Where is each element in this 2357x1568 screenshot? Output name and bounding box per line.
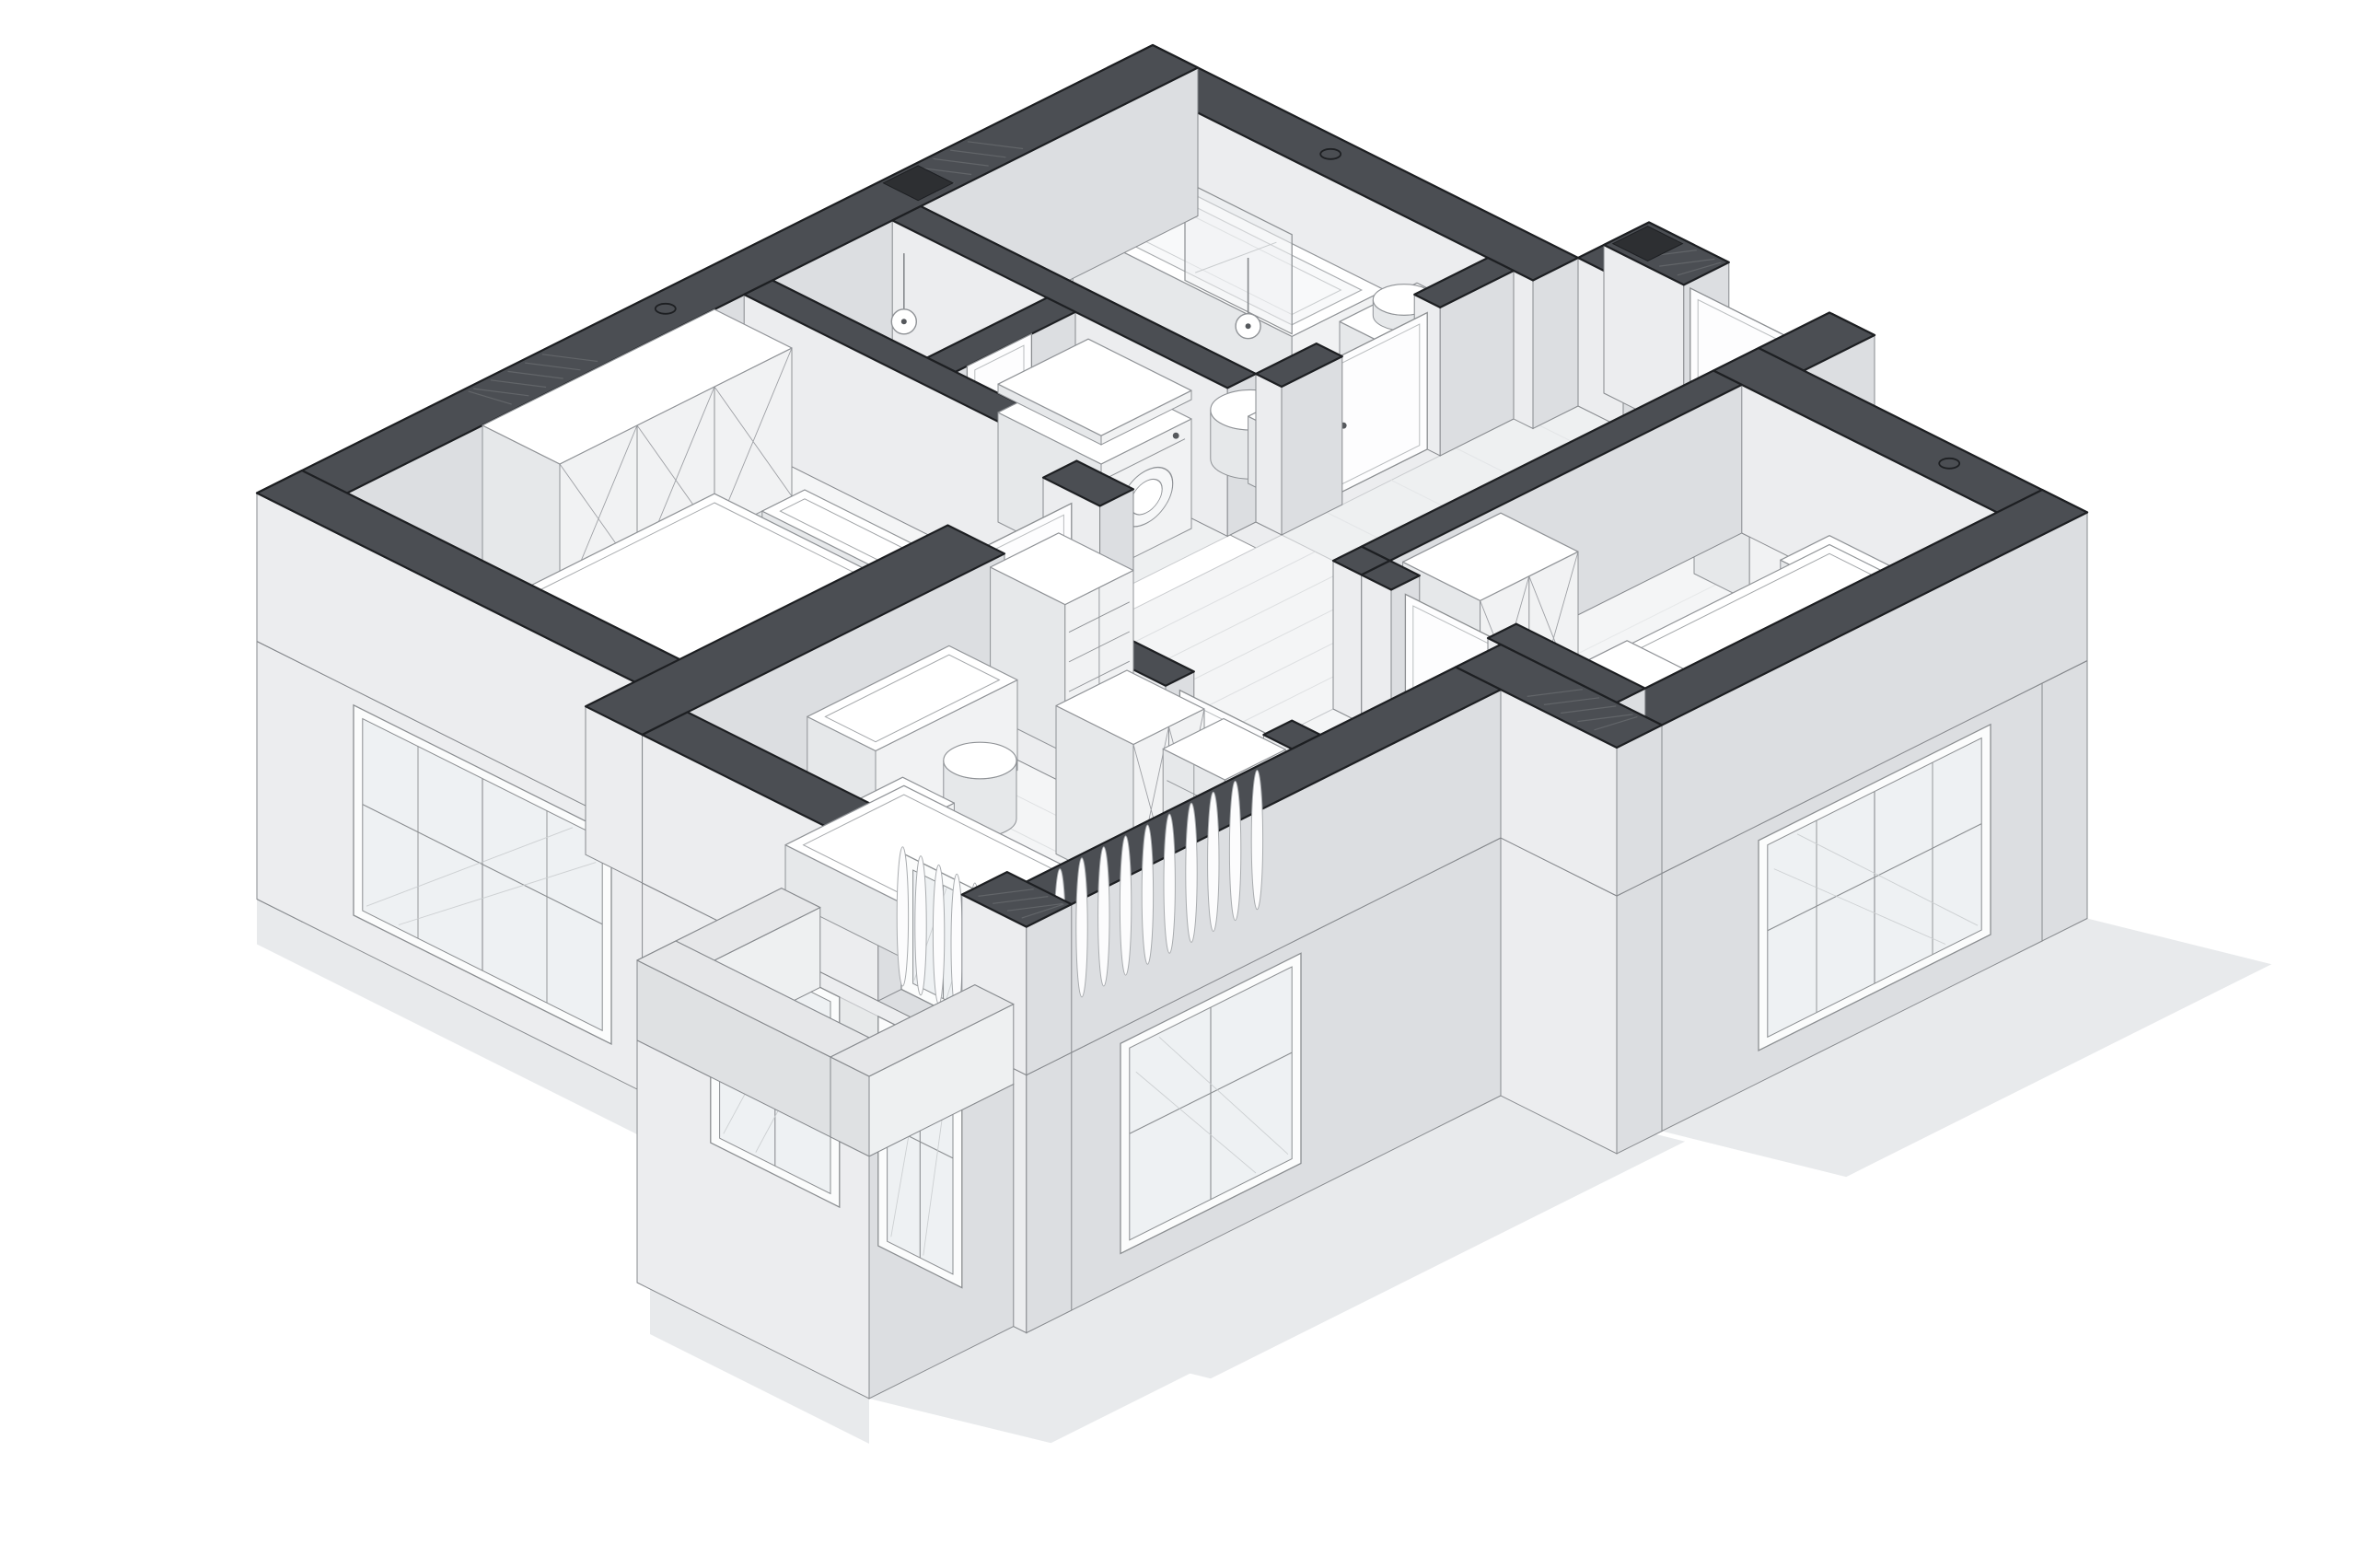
wall-bath-se-2 bbox=[1256, 343, 1342, 535]
isometric-floor-plan bbox=[0, 0, 2357, 1568]
wall-bath-se-1 bbox=[1414, 258, 1514, 456]
page bbox=[0, 0, 2357, 1568]
